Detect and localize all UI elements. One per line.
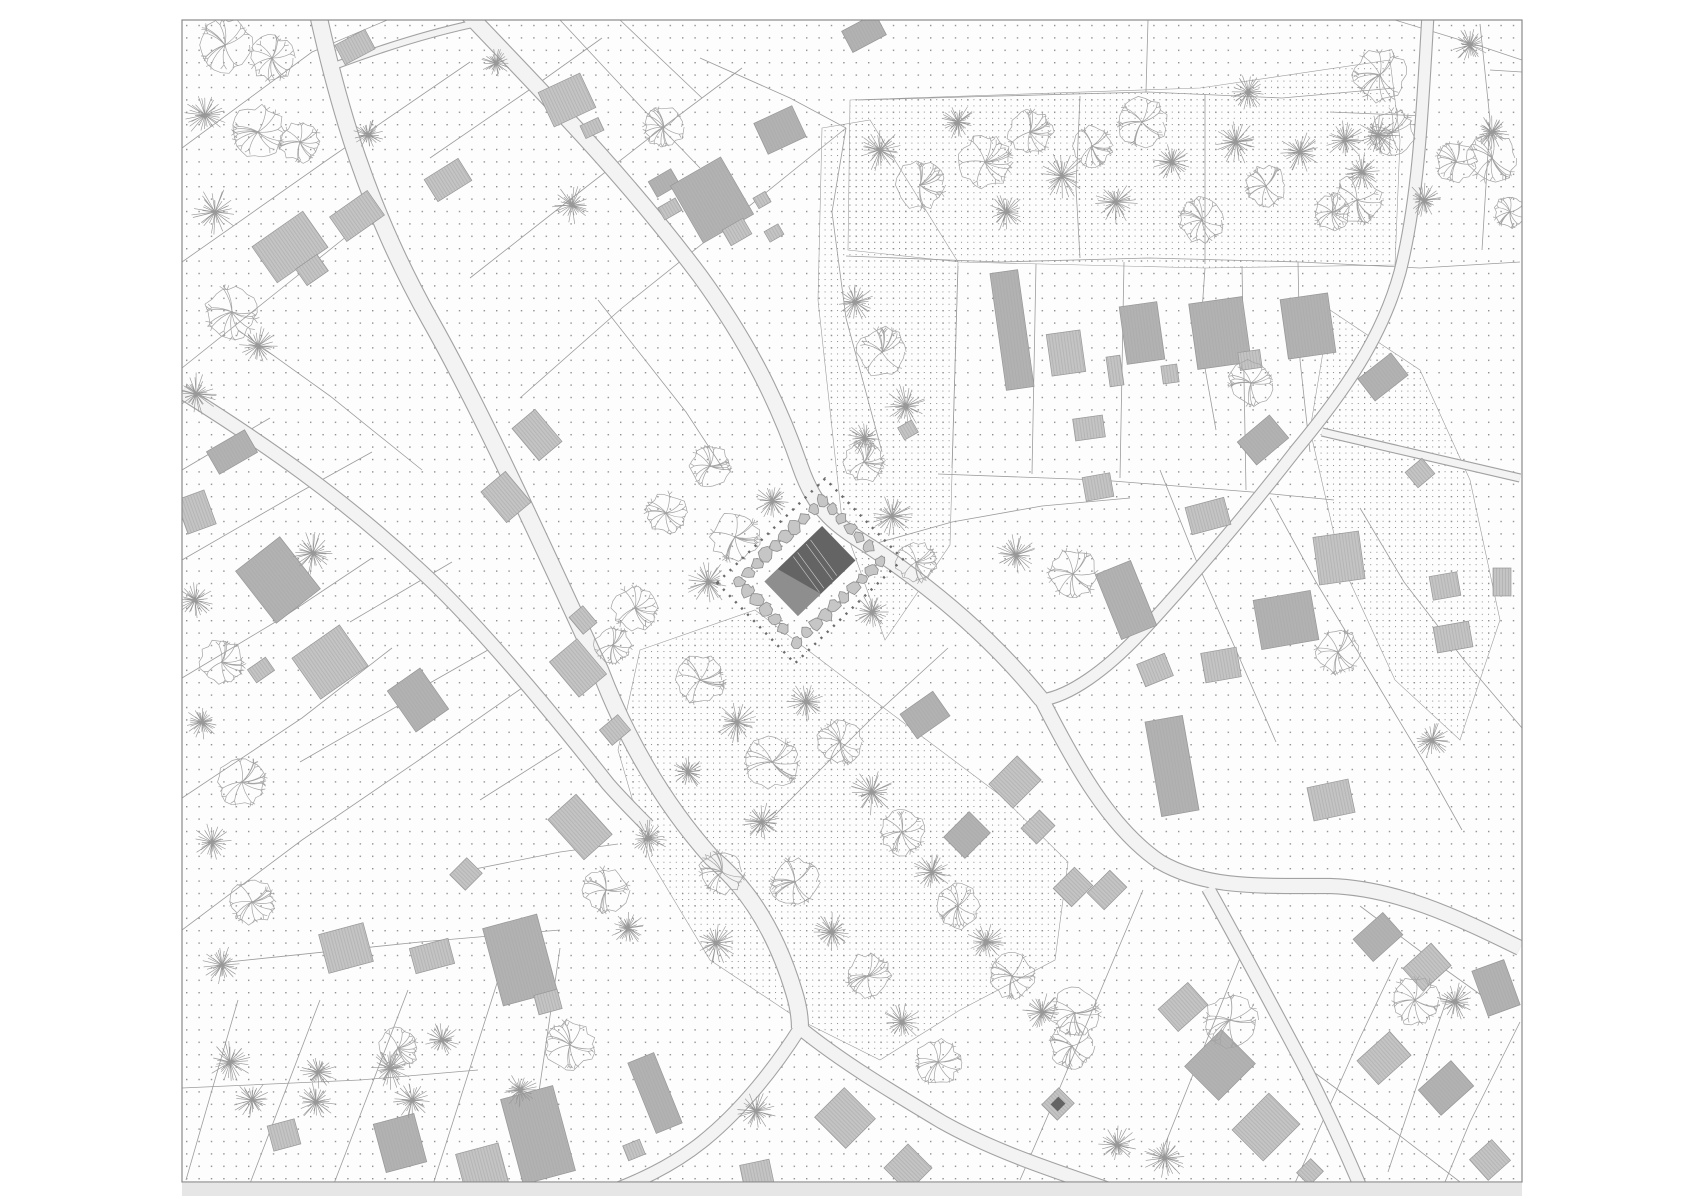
site-plan-map bbox=[0, 0, 1700, 1202]
building bbox=[1046, 330, 1086, 376]
building bbox=[1429, 572, 1461, 600]
building bbox=[1313, 531, 1365, 585]
plan-bottom-shadow bbox=[182, 1183, 1522, 1196]
plan-content bbox=[176, 13, 1527, 1200]
building bbox=[1073, 415, 1106, 441]
building bbox=[1280, 293, 1336, 359]
building bbox=[1161, 364, 1179, 384]
building bbox=[1253, 590, 1319, 649]
building bbox=[1493, 568, 1511, 596]
building bbox=[1082, 473, 1114, 501]
site-plan-page bbox=[0, 0, 1700, 1202]
building bbox=[1119, 302, 1165, 365]
building bbox=[1201, 647, 1242, 683]
